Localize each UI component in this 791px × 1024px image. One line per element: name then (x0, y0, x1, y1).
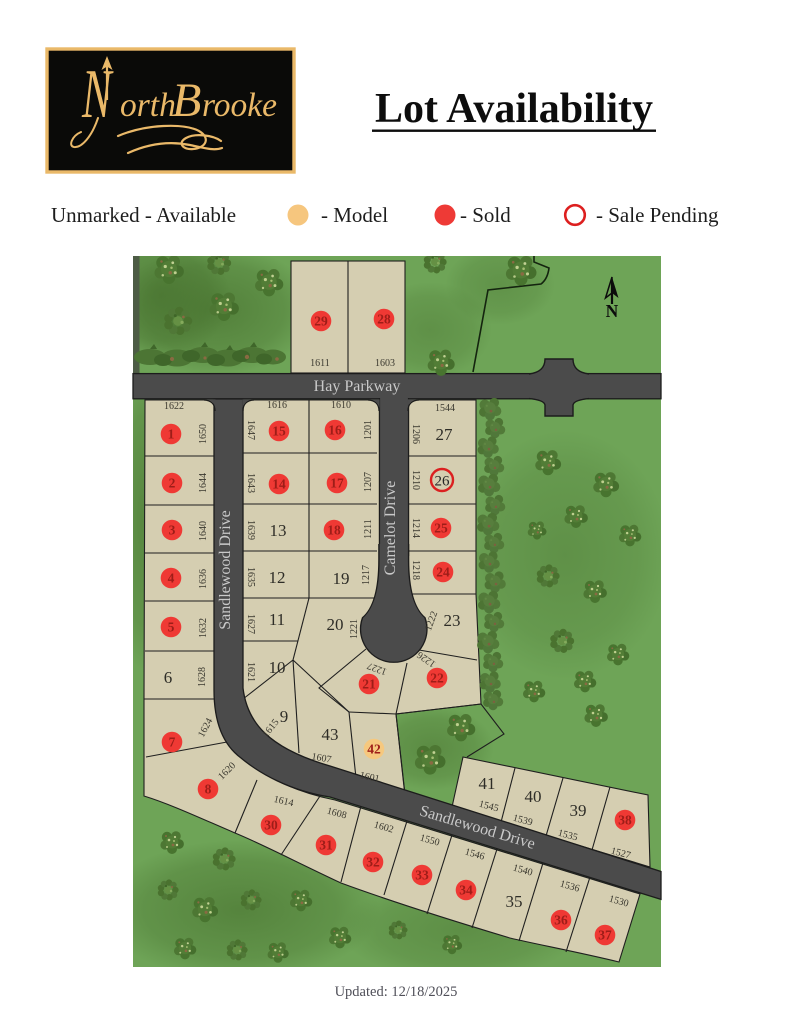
svg-text:18: 18 (327, 523, 341, 538)
svg-text:24: 24 (436, 565, 450, 580)
svg-text:10: 10 (269, 658, 286, 677)
svg-text:1544: 1544 (435, 403, 455, 414)
svg-text:22: 22 (430, 671, 444, 686)
svg-text:1201: 1201 (363, 420, 374, 440)
svg-text:5: 5 (168, 620, 175, 635)
svg-text:23: 23 (444, 611, 461, 630)
svg-text:1603: 1603 (375, 358, 395, 369)
svg-text:16: 16 (328, 423, 342, 438)
svg-text:40: 40 (525, 787, 542, 806)
svg-text:1611: 1611 (310, 358, 330, 369)
svg-text:1616: 1616 (267, 400, 287, 411)
svg-text:1647: 1647 (245, 420, 256, 440)
svg-text:Camelot Drive: Camelot Drive (382, 481, 399, 576)
svg-text:17: 17 (330, 476, 344, 491)
svg-text:8: 8 (205, 782, 212, 797)
svg-text:14: 14 (272, 477, 286, 492)
svg-text:28: 28 (377, 312, 391, 327)
svg-text:26: 26 (435, 474, 451, 490)
svg-text:1218: 1218 (410, 560, 421, 580)
svg-text:20: 20 (327, 615, 344, 634)
svg-text:1206: 1206 (410, 424, 421, 444)
svg-text:- Sale Pending: - Sale Pending (596, 203, 719, 227)
svg-text:27: 27 (436, 425, 454, 444)
svg-text:- Model: - Model (321, 203, 388, 227)
svg-text:Hay Parkway: Hay Parkway (314, 378, 401, 395)
svg-text:1621: 1621 (245, 662, 256, 682)
svg-text:1207: 1207 (363, 472, 374, 492)
svg-text:- Sold: - Sold (460, 203, 511, 227)
svg-text:1214: 1214 (410, 518, 421, 538)
svg-text:32: 32 (366, 855, 380, 870)
svg-text:25: 25 (434, 521, 448, 536)
svg-text:34: 34 (459, 883, 473, 898)
svg-text:37: 37 (598, 928, 612, 943)
svg-text:29: 29 (314, 314, 328, 329)
svg-text:1221: 1221 (349, 619, 360, 639)
svg-text:9: 9 (280, 707, 289, 726)
svg-text:orth: orth (120, 87, 176, 124)
svg-text:43: 43 (322, 725, 339, 744)
svg-text:19: 19 (333, 569, 350, 588)
svg-text:1217: 1217 (361, 565, 372, 585)
svg-text:31: 31 (319, 838, 333, 853)
svg-text:3: 3 (169, 523, 176, 538)
svg-text:1639: 1639 (245, 520, 256, 540)
svg-text:1636: 1636 (198, 569, 209, 589)
svg-text:B: B (172, 74, 201, 127)
svg-text:1: 1 (168, 427, 175, 442)
svg-text:1628: 1628 (197, 667, 208, 687)
svg-text:Sandlewood Drive: Sandlewood Drive (217, 510, 234, 630)
svg-text:36: 36 (554, 913, 568, 928)
svg-text:39: 39 (570, 801, 587, 820)
svg-text:rooke: rooke (202, 87, 277, 124)
svg-text:35: 35 (506, 892, 523, 911)
svg-text:4: 4 (168, 571, 175, 586)
svg-text:12: 12 (269, 568, 286, 587)
svg-text:13: 13 (270, 521, 287, 540)
svg-text:1627: 1627 (245, 614, 256, 634)
svg-text:Updated: 12/18/2025: Updated: 12/18/2025 (335, 984, 458, 1000)
svg-text:7: 7 (169, 735, 176, 750)
svg-text:1640: 1640 (198, 521, 209, 541)
svg-text:15: 15 (272, 424, 286, 439)
svg-text:1644: 1644 (198, 473, 209, 493)
svg-text:38: 38 (618, 813, 632, 828)
svg-text:1635: 1635 (245, 567, 256, 587)
svg-text:1210: 1210 (410, 470, 421, 490)
svg-text:11: 11 (269, 610, 285, 629)
svg-text:1610: 1610 (331, 400, 351, 411)
svg-text:1211: 1211 (363, 519, 374, 539)
svg-text:1622: 1622 (164, 401, 184, 412)
svg-text:1643: 1643 (245, 473, 256, 493)
svg-text:1650: 1650 (198, 424, 209, 444)
svg-text:N: N (606, 301, 619, 321)
svg-text:2: 2 (169, 476, 176, 491)
svg-text:6: 6 (164, 668, 173, 687)
svg-text:21: 21 (362, 677, 376, 692)
svg-text:1632: 1632 (198, 618, 209, 638)
svg-text:33: 33 (415, 868, 429, 883)
svg-text:42: 42 (367, 742, 381, 757)
svg-text:Lot Availability: Lot Availability (375, 86, 653, 132)
svg-text:41: 41 (479, 774, 496, 793)
svg-text:Unmarked - Available: Unmarked - Available (51, 203, 236, 227)
svg-text:30: 30 (264, 818, 278, 833)
